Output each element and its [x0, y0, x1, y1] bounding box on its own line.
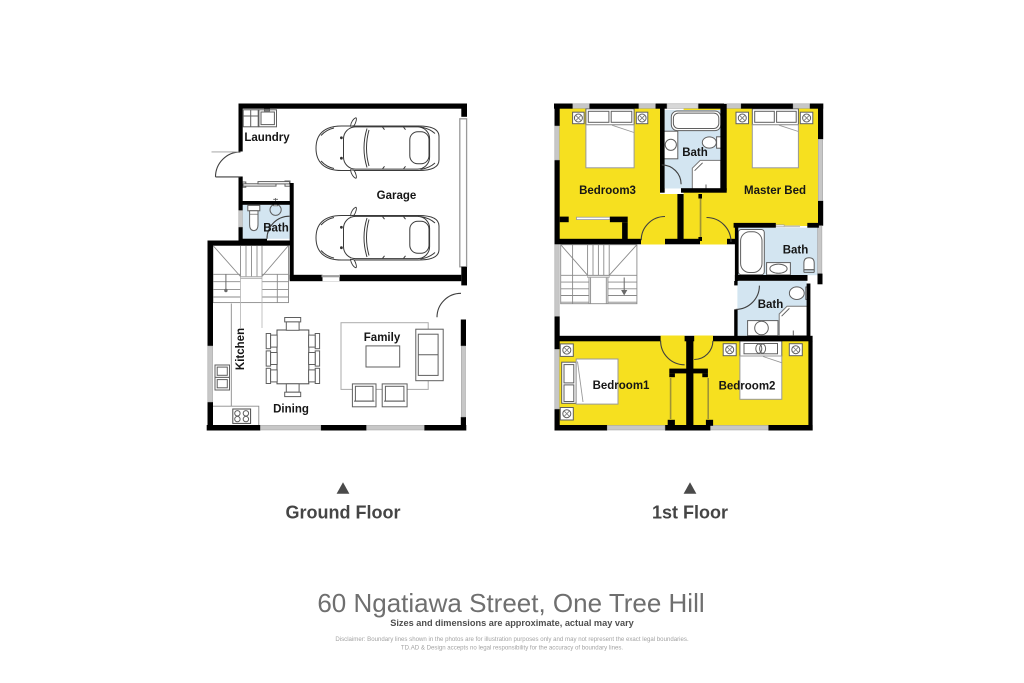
svg-text:Kitchen: Kitchen: [235, 328, 247, 370]
svg-text:Disclaimer: Boundary lines sho: Disclaimer: Boundary lines shown in the …: [335, 636, 689, 643]
svg-text:Dining: Dining: [273, 404, 309, 416]
svg-text:Bedroom1: Bedroom1: [593, 380, 650, 392]
svg-text:Ground Floor: Ground Floor: [286, 503, 401, 523]
svg-text:1st Floor: 1st Floor: [652, 503, 728, 523]
svg-text:Sizes and dimensions are appro: Sizes and dimensions are approximate, ac…: [390, 618, 634, 628]
svg-text:Bedroom2: Bedroom2: [719, 381, 776, 393]
svg-text:Laundry: Laundry: [244, 132, 290, 144]
svg-text:Bedroom3: Bedroom3: [579, 185, 636, 197]
svg-text:Family: Family: [364, 332, 401, 344]
svg-text:Master Bed: Master Bed: [744, 185, 806, 197]
svg-text:Bath: Bath: [263, 223, 289, 235]
svg-text:60 Ngatiawa Street, One Tree H: 60 Ngatiawa Street, One Tree Hill: [317, 588, 704, 618]
svg-text:Garage: Garage: [377, 190, 417, 202]
svg-text:TD.AD & Design accepts no lega: TD.AD & Design accepts no legal responsi…: [401, 645, 623, 652]
svg-text:Bath: Bath: [758, 299, 784, 311]
svg-text:Bath: Bath: [682, 147, 708, 159]
svg-text:Bath: Bath: [783, 245, 809, 257]
